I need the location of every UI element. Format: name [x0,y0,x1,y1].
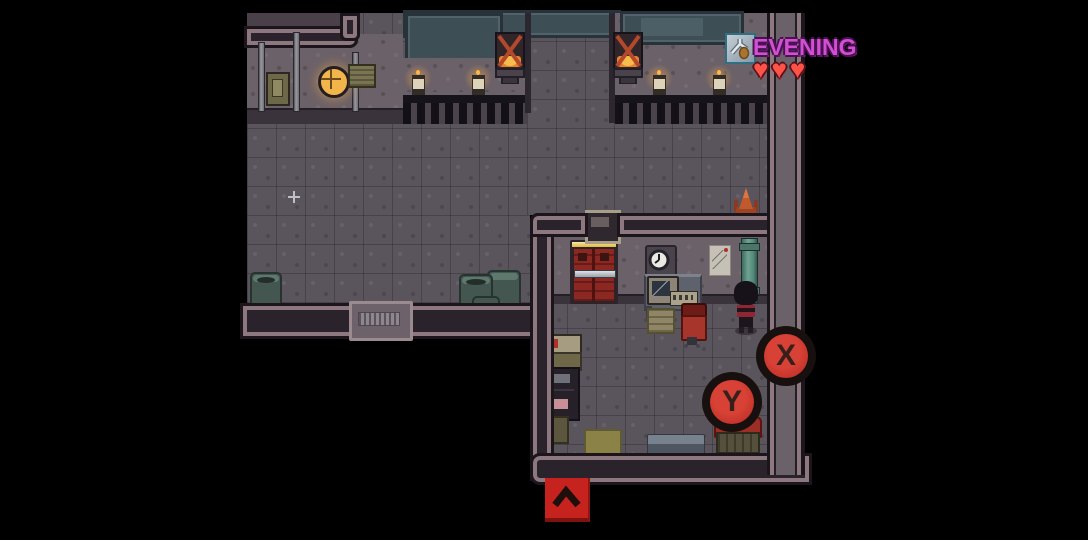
candle-body [713,75,726,95]
office-north-wall-border-right [617,213,779,237]
lamp-cross-bar [321,78,341,80]
heart-icon: ♥ [790,54,808,84]
entry-step-plaque [358,312,400,326]
railing-bar [615,92,767,103]
candle-jar [470,68,486,96]
heart-icon: ♥ [771,54,789,84]
wall-poster [709,245,731,276]
candle-jar [711,68,727,96]
character-hair [734,281,758,305]
health-hearts: ♥♥♥ [753,54,808,85]
shelf-item-pink [554,399,568,409]
red-exit-door [570,240,618,304]
floor-sparkle [288,191,300,203]
clock-face [647,247,671,273]
chevron-up-icon [545,478,588,518]
candle-body [412,75,425,95]
action-button-y-label: Y [722,387,742,417]
candle-body [472,75,485,95]
traffic-cone [733,186,759,216]
furnace-graphic [495,32,525,84]
action-button-x[interactable]: X [756,326,816,386]
electrical-box-panel [272,79,283,97]
poster-pin [724,248,728,252]
office-north-wall-border-left [530,213,588,237]
furnace [613,32,643,84]
entry-step-mat [349,301,413,341]
window-inner [641,18,703,36]
radiator-railing [403,92,527,124]
player-character [733,279,759,335]
railing-slats [615,103,767,124]
candle-jar [410,68,426,96]
monitor-screen [652,281,670,296]
wall-seam [525,13,531,113]
action-button-x-label: X [776,341,796,371]
wall-pipe [293,32,300,112]
candle-jar [651,68,667,96]
shelf-item-gray [554,374,570,383]
poster-scribble [712,250,727,269]
door-window-slit [600,253,609,261]
character-shirt [737,305,755,317]
candle-body [653,75,666,95]
door-push-bar [574,270,616,278]
heart-icon: ♥ [753,54,771,84]
radiator-railing [615,92,767,124]
furnace-graphic [613,32,643,84]
keyboard-keys [673,295,693,300]
pipe-bracket [739,243,760,251]
office-chair [679,303,705,349]
electrical-box [266,72,290,106]
furnace [495,32,525,84]
cone-graphic [733,186,759,216]
window-panel-left [405,13,503,64]
door-sign-screen [591,217,609,227]
action-button-y[interactable]: Y [702,372,762,432]
wall-lamp [318,66,350,98]
door-sign [585,210,621,244]
slingshot-icon [727,35,754,62]
office-west-wall-border [530,213,554,481]
hall-north-baseboard [247,108,403,124]
move-up-button[interactable] [545,478,590,522]
wall-border-corner-up [340,13,360,41]
character-pants [739,317,753,327]
wall-vent [348,64,376,88]
character-foot [739,327,744,333]
door-window-slit [578,253,587,261]
railing-slats [403,103,527,124]
weapon-slot[interactable] [725,33,756,64]
wall-pipe [258,42,265,112]
game-screen: EVENING ♥♥♥ X Y [0,0,1088,540]
under-desk-bags [647,308,675,334]
bench-crate [716,432,760,454]
character-foot [748,327,753,333]
chair-casters [683,344,701,349]
